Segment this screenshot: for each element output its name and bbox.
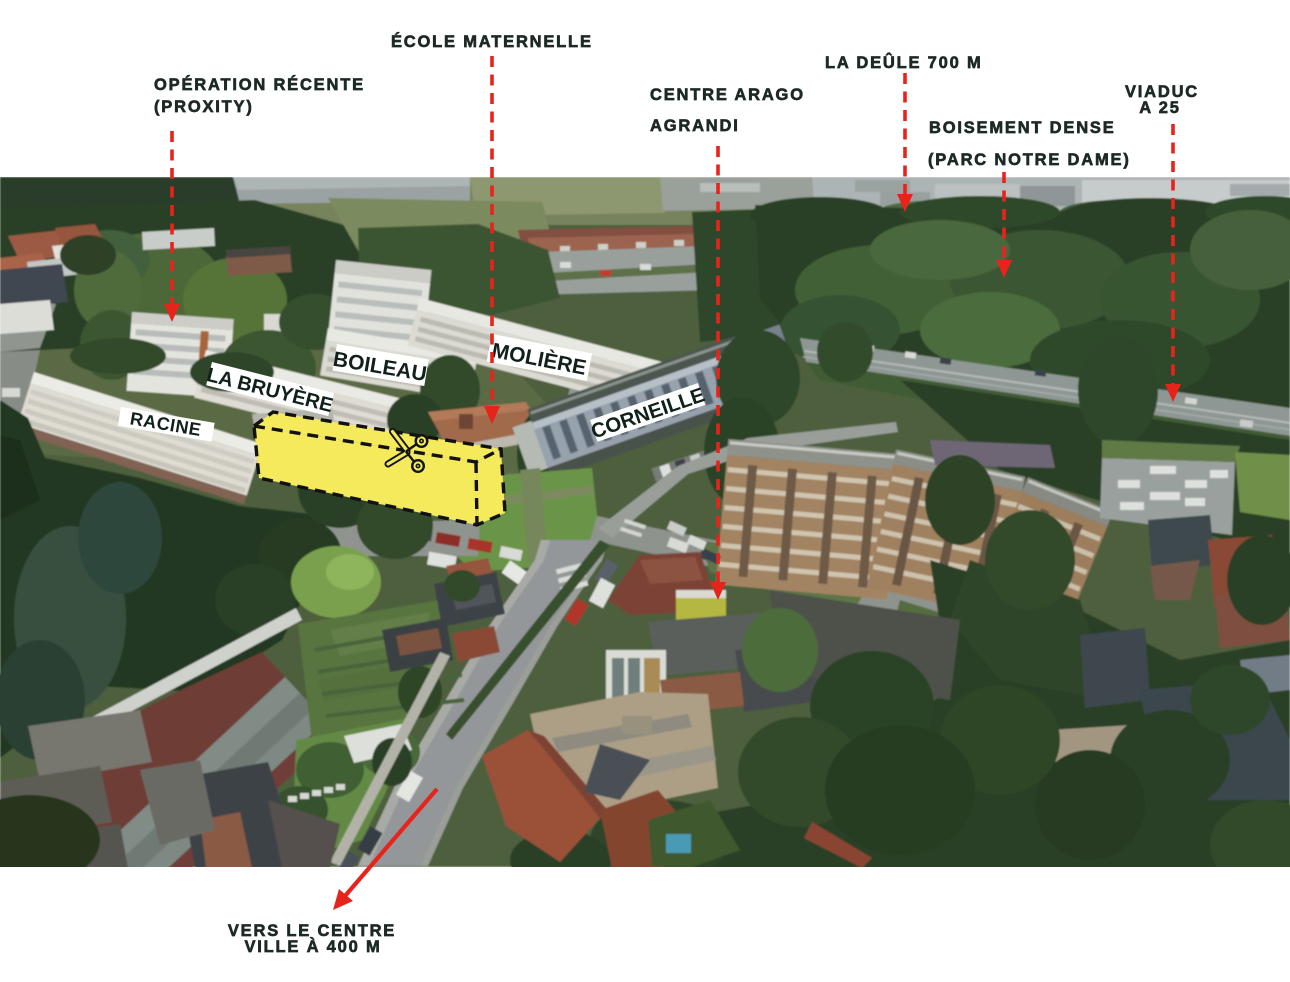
svg-text:A 25: A 25 <box>1139 99 1180 117</box>
svg-text:VILLE À 400 M: VILLE À 400 M <box>244 937 381 956</box>
svg-text:LA DEÛLE 700 M: LA DEÛLE 700 M <box>825 53 983 72</box>
svg-text:BOISEMENT DENSE: BOISEMENT DENSE <box>929 119 1116 137</box>
svg-text:AGRANDI: AGRANDI <box>650 117 740 135</box>
svg-text:(PARC NOTRE DAME): (PARC NOTRE DAME) <box>928 151 1131 169</box>
svg-text:(PROXITY): (PROXITY) <box>154 98 254 116</box>
svg-text:CENTRE ARAGO: CENTRE ARAGO <box>650 86 805 104</box>
svg-text:OPÉRATION RÉCENTE: OPÉRATION RÉCENTE <box>154 75 365 94</box>
svg-text:ÉCOLE MATERNELLE: ÉCOLE MATERNELLE <box>391 32 593 51</box>
